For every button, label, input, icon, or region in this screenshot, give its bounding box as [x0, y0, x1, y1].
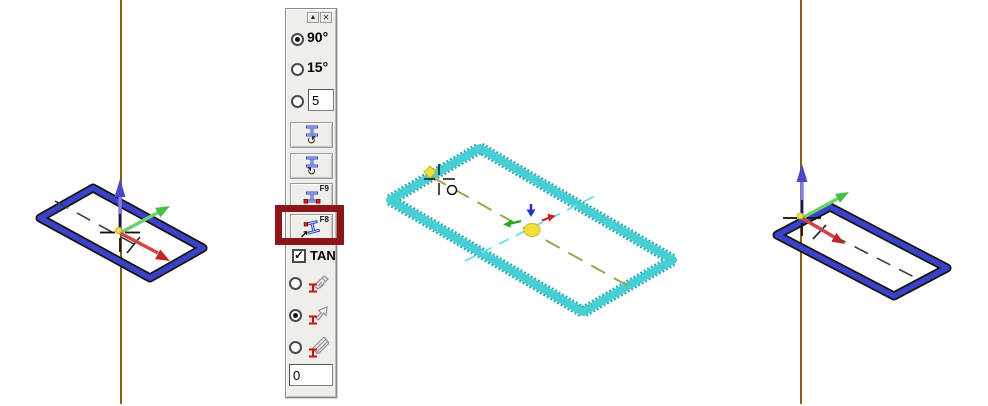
- axis-y-arrowhead: [835, 192, 849, 203]
- tan-label: TAN: [310, 248, 336, 263]
- gizmo-origin-dot[interactable]: [524, 224, 540, 237]
- collapse-button[interactable]: ▲: [307, 12, 319, 23]
- gizmo-y-arrowhead: [503, 220, 512, 228]
- radio-angle-90[interactable]: [291, 33, 304, 46]
- snap-circle: [448, 186, 457, 195]
- gizmo-z-arrowhead: [527, 210, 536, 218]
- f8-key-label: F8: [320, 215, 329, 224]
- origin-dot-right: [797, 213, 803, 219]
- rotate-cw-icon: ↻: [307, 167, 316, 177]
- cad-workspace: ▲ ✕ 90° 15° ↺ ↻ F9: [0, 0, 988, 406]
- radio-beam-flip[interactable]: [289, 309, 302, 322]
- rotate-cw-button[interactable]: ↻: [290, 153, 333, 179]
- f9-key-label: F9: [320, 184, 329, 193]
- axis-z-arrowhead: [115, 179, 126, 197]
- tan-checkbox[interactable]: ✓: [292, 249, 306, 263]
- origin-dot-left: [116, 228, 122, 234]
- rotation-toolbar-panel: ▲ ✕ 90° 15° ↺ ↻ F9: [285, 8, 337, 398]
- sketch-rect-right[interactable]: [777, 207, 947, 296]
- axis-y-arrowhead: [155, 206, 170, 218]
- center-gizmo[interactable]: [503, 204, 556, 237]
- radio-angle-custom[interactable]: [291, 95, 304, 108]
- place-beam-f9-button[interactable]: F9: [290, 183, 333, 209]
- triad-right[interactable]: [783, 164, 849, 244]
- radio-beam-extrude[interactable]: [289, 277, 302, 290]
- radio-beam-hatch[interactable]: [289, 341, 302, 354]
- close-button[interactable]: ✕: [320, 12, 332, 23]
- axis-x-left[interactable]: [120, 233, 158, 253]
- radio-angle-15[interactable]: [291, 63, 304, 76]
- collapse-icon: ▲: [310, 14, 317, 21]
- beam-extrude-icon: [306, 271, 332, 295]
- axis-z-arrowhead: [797, 164, 808, 182]
- rotate-ccw-icon: ↺: [307, 136, 316, 146]
- radio-angle-15-label: 15°: [307, 59, 328, 75]
- rotate-ccw-button[interactable]: ↺: [290, 122, 333, 148]
- gizmo-x-arrowhead: [548, 214, 556, 222]
- offset-input[interactable]: [289, 364, 333, 386]
- viewport-canvas: [0, 0, 988, 406]
- custom-angle-input[interactable]: [308, 89, 334, 111]
- beam-flip-icon: [306, 303, 332, 327]
- checkmark-icon: ✓: [294, 248, 304, 262]
- close-icon: ✕: [323, 13, 330, 22]
- radio-angle-90-label: 90°: [307, 29, 328, 45]
- place-beam-f8-button[interactable]: F8: [290, 214, 333, 240]
- beam-hatch-icon: [306, 335, 332, 359]
